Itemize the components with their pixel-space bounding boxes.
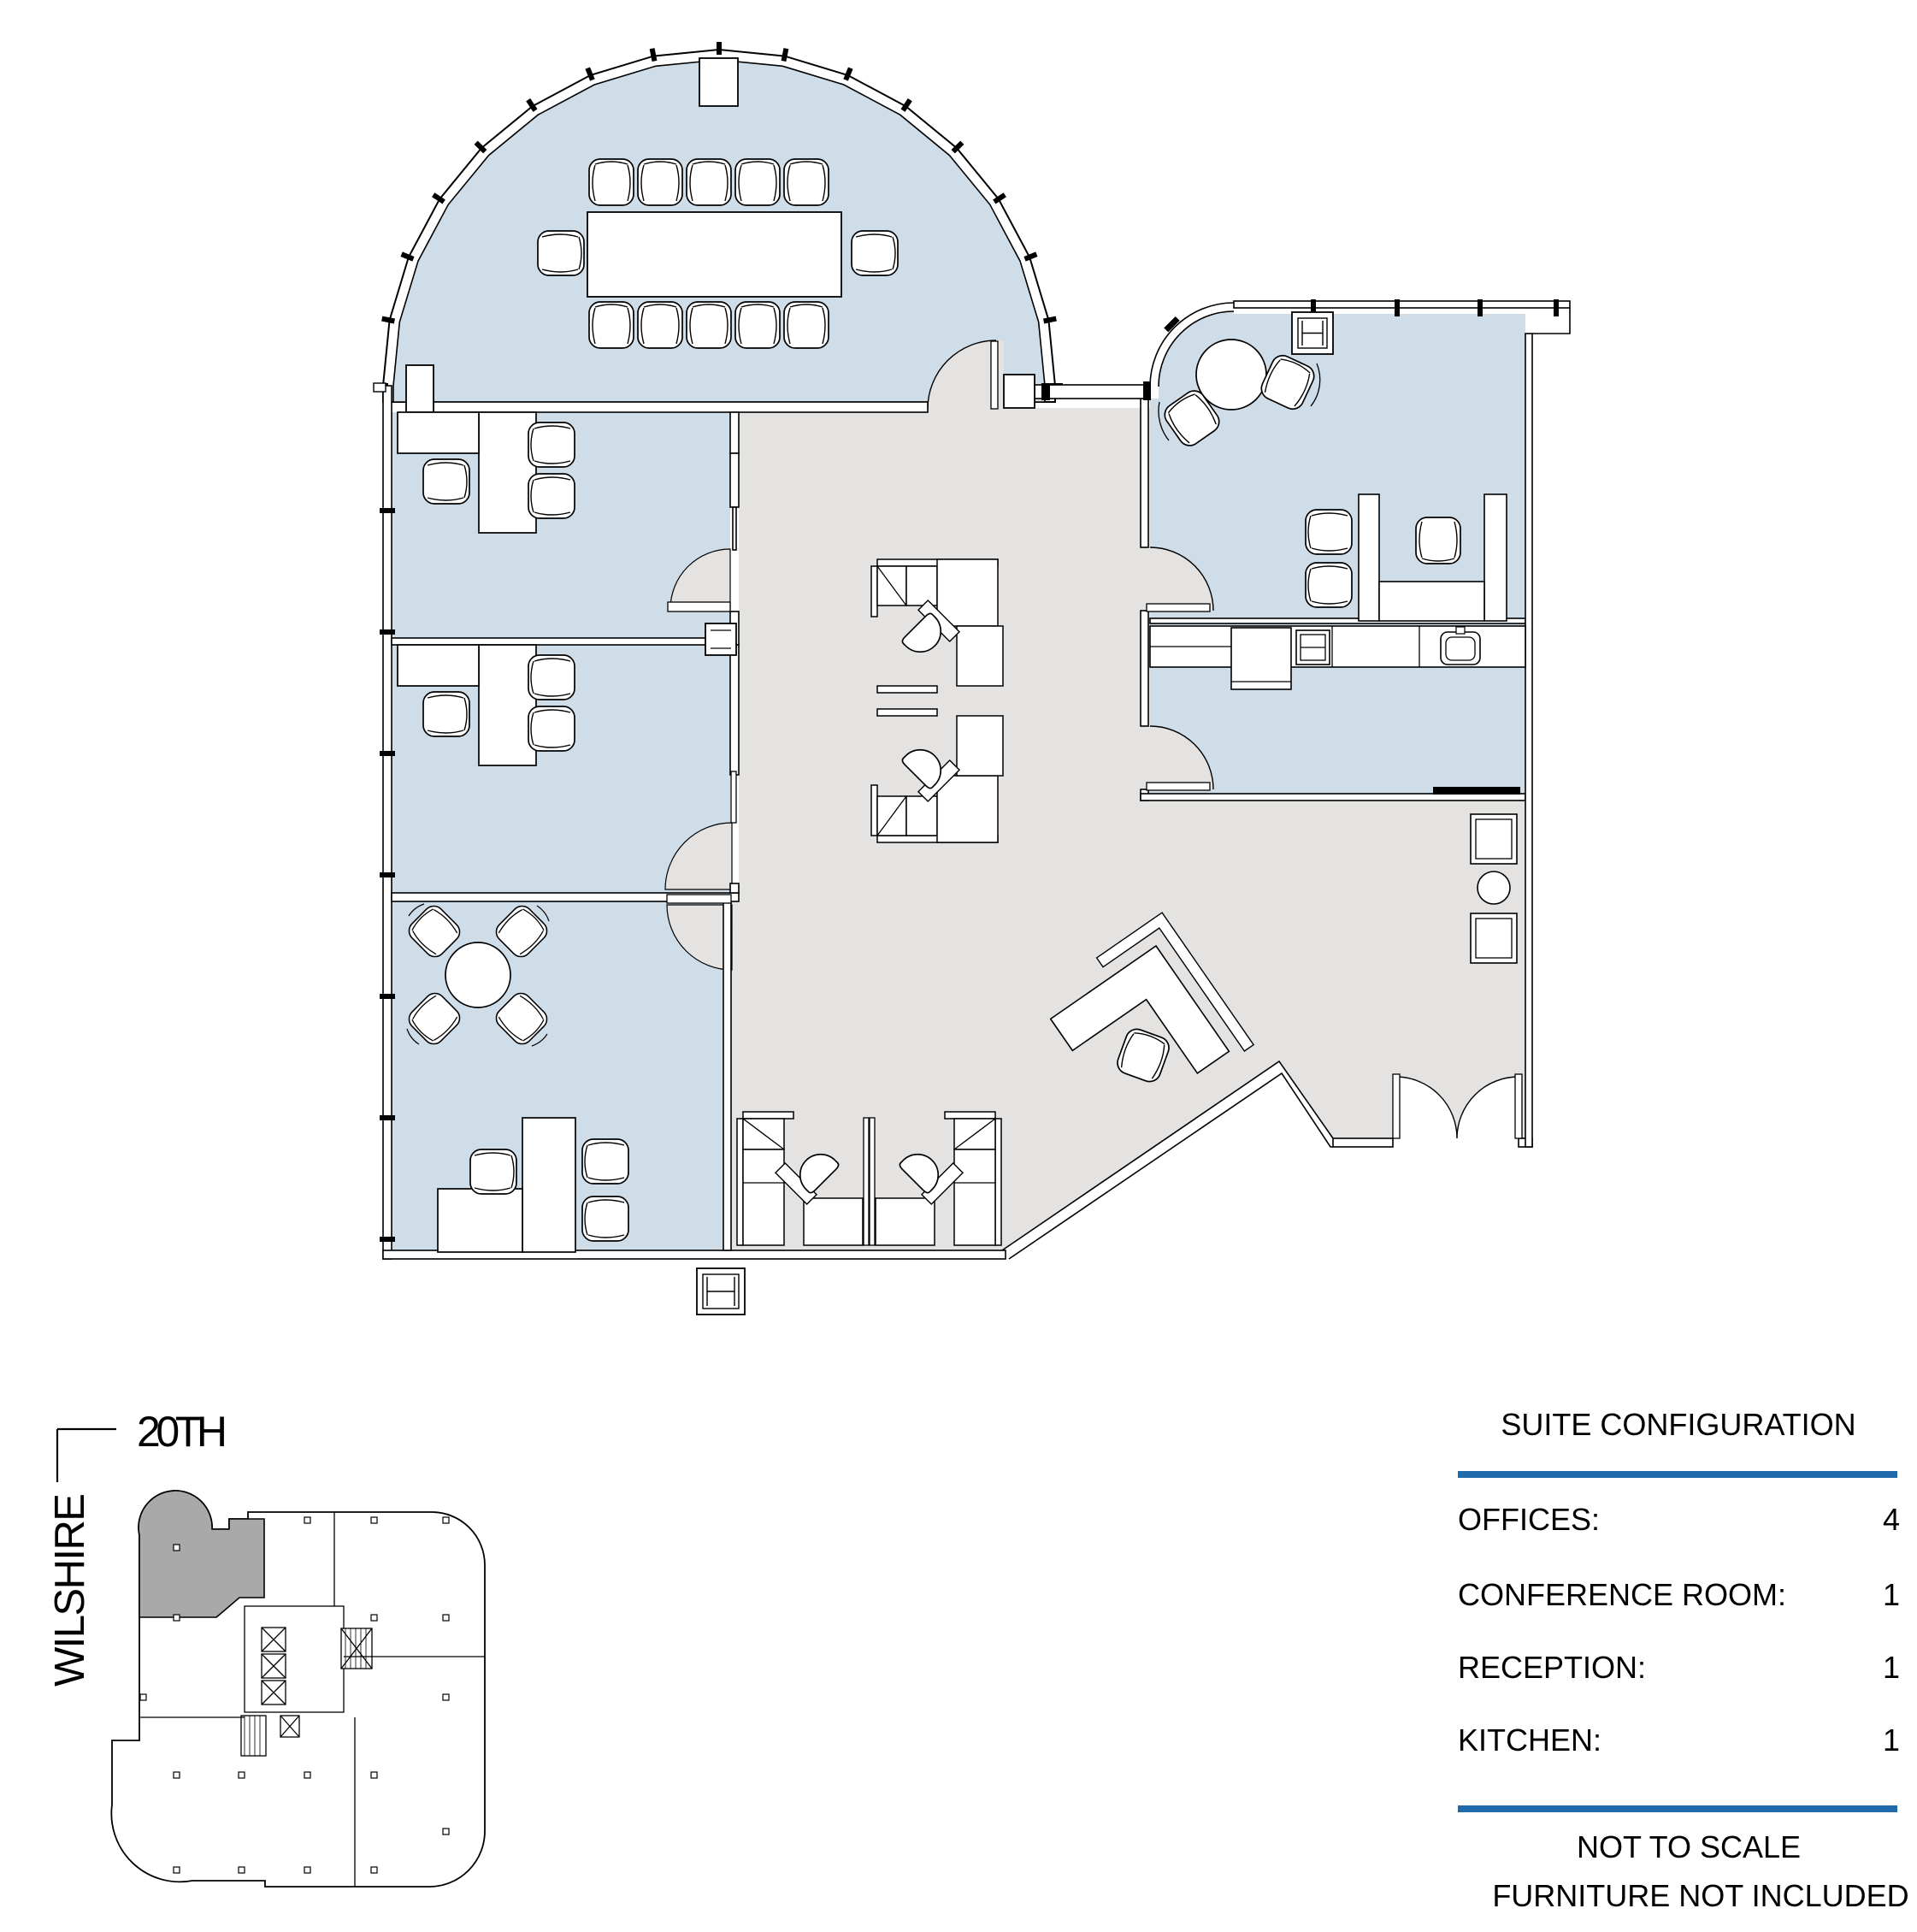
svg-text:FURNITURE NOT INCLUDED: FURNITURE NOT INCLUDED: [1492, 1878, 1908, 1913]
svg-text:KITCHEN:: KITCHEN:: [1458, 1722, 1601, 1758]
svg-text:1: 1: [1883, 1577, 1900, 1612]
svg-text:WILSHIRE: WILSHIRE: [47, 1493, 93, 1687]
svg-text:SUITE CONFIGURATION: SUITE CONFIGURATION: [1501, 1407, 1855, 1442]
svg-text:OFFICES:: OFFICES:: [1458, 1502, 1600, 1537]
svg-text:4: 4: [1883, 1502, 1900, 1537]
svg-text:CONFERENCE ROOM:: CONFERENCE ROOM:: [1458, 1577, 1786, 1612]
svg-text:NOT TO SCALE: NOT TO SCALE: [1577, 1829, 1801, 1864]
svg-text:1: 1: [1883, 1722, 1900, 1758]
svg-text:20TH: 20TH: [137, 1408, 227, 1456]
svg-text:RECEPTION:: RECEPTION:: [1458, 1650, 1646, 1685]
svg-text:1: 1: [1883, 1650, 1900, 1685]
